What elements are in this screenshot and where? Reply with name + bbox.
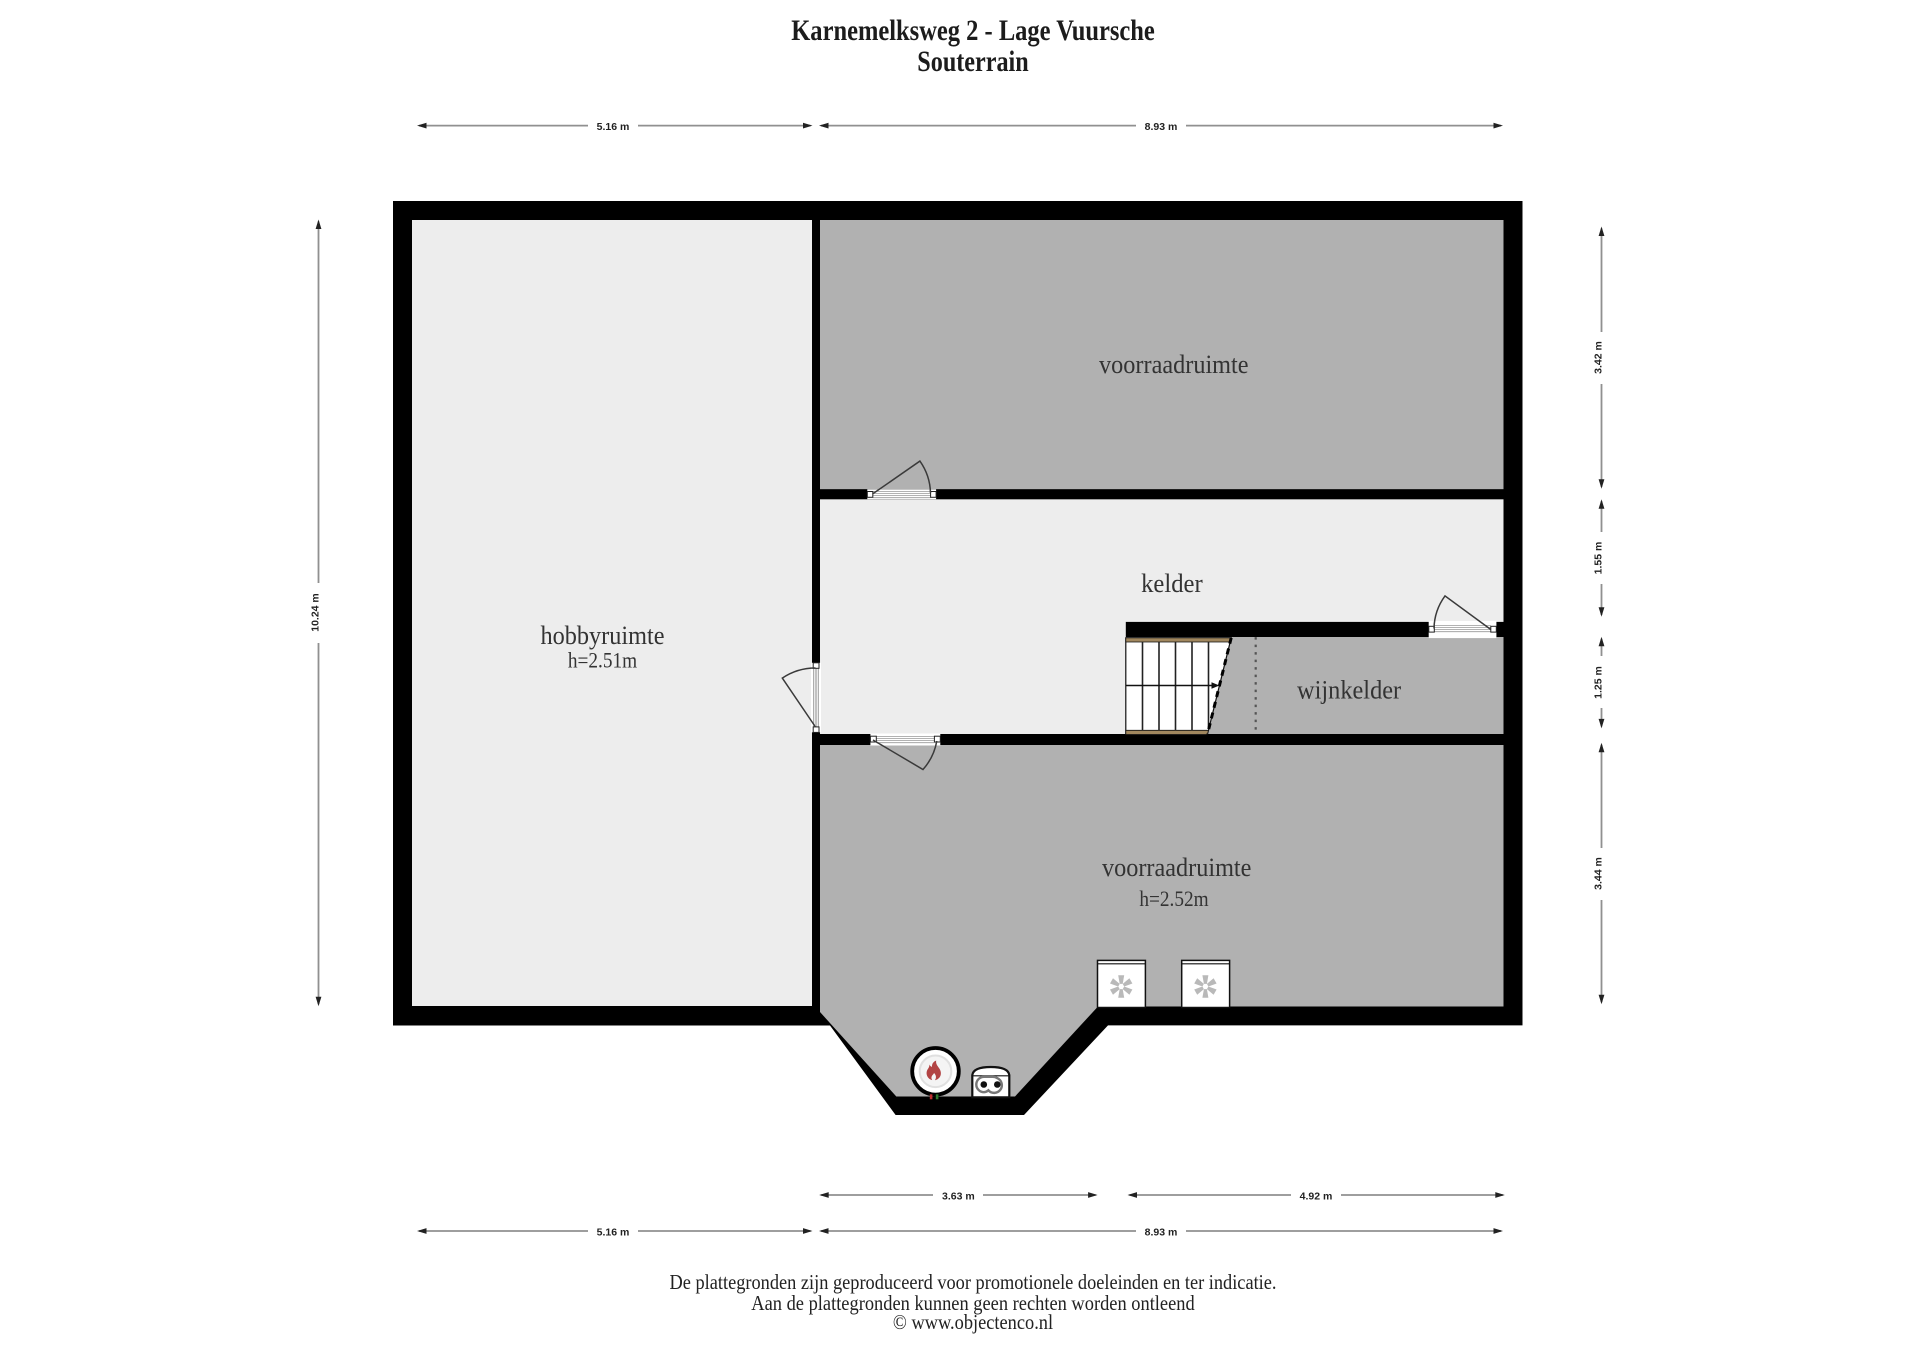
svg-text:Souterrain: Souterrain [917, 45, 1029, 78]
svg-text:wijnkelder: wijnkelder [1297, 676, 1401, 705]
svg-text:3.63 m: 3.63 m [942, 1190, 975, 1202]
svg-text:1.25 m: 1.25 m [1593, 666, 1605, 699]
svg-text:8.93 m: 8.93 m [1145, 1226, 1178, 1238]
svg-text:voorraadruimte: voorraadruimte [1102, 853, 1252, 882]
svg-text:5.16 m: 5.16 m [597, 1226, 630, 1238]
svg-text:voorraadruimte: voorraadruimte [1099, 350, 1249, 379]
svg-text:3.42 m: 3.42 m [1593, 341, 1605, 374]
svg-text:Karnemelksweg 2 - Lage Vuursch: Karnemelksweg 2 - Lage Vuursche [791, 14, 1155, 47]
svg-text:8.93 m: 8.93 m [1145, 121, 1178, 133]
svg-text:4.92 m: 4.92 m [1300, 1190, 1333, 1202]
svg-text:kelder: kelder [1141, 569, 1203, 598]
svg-text:3.44 m: 3.44 m [1593, 857, 1605, 890]
svg-text:10.24 m: 10.24 m [310, 593, 322, 632]
svg-text:© www.objectenco.nl: © www.objectenco.nl [893, 1310, 1053, 1334]
svg-text:h=2.52m: h=2.52m [1139, 886, 1208, 911]
svg-text:5.16 m: 5.16 m [597, 121, 630, 133]
svg-text:1.55 m: 1.55 m [1593, 542, 1605, 575]
svg-text:hobbyruimte: hobbyruimte [541, 621, 665, 650]
svg-text:h=2.51m: h=2.51m [568, 648, 637, 673]
